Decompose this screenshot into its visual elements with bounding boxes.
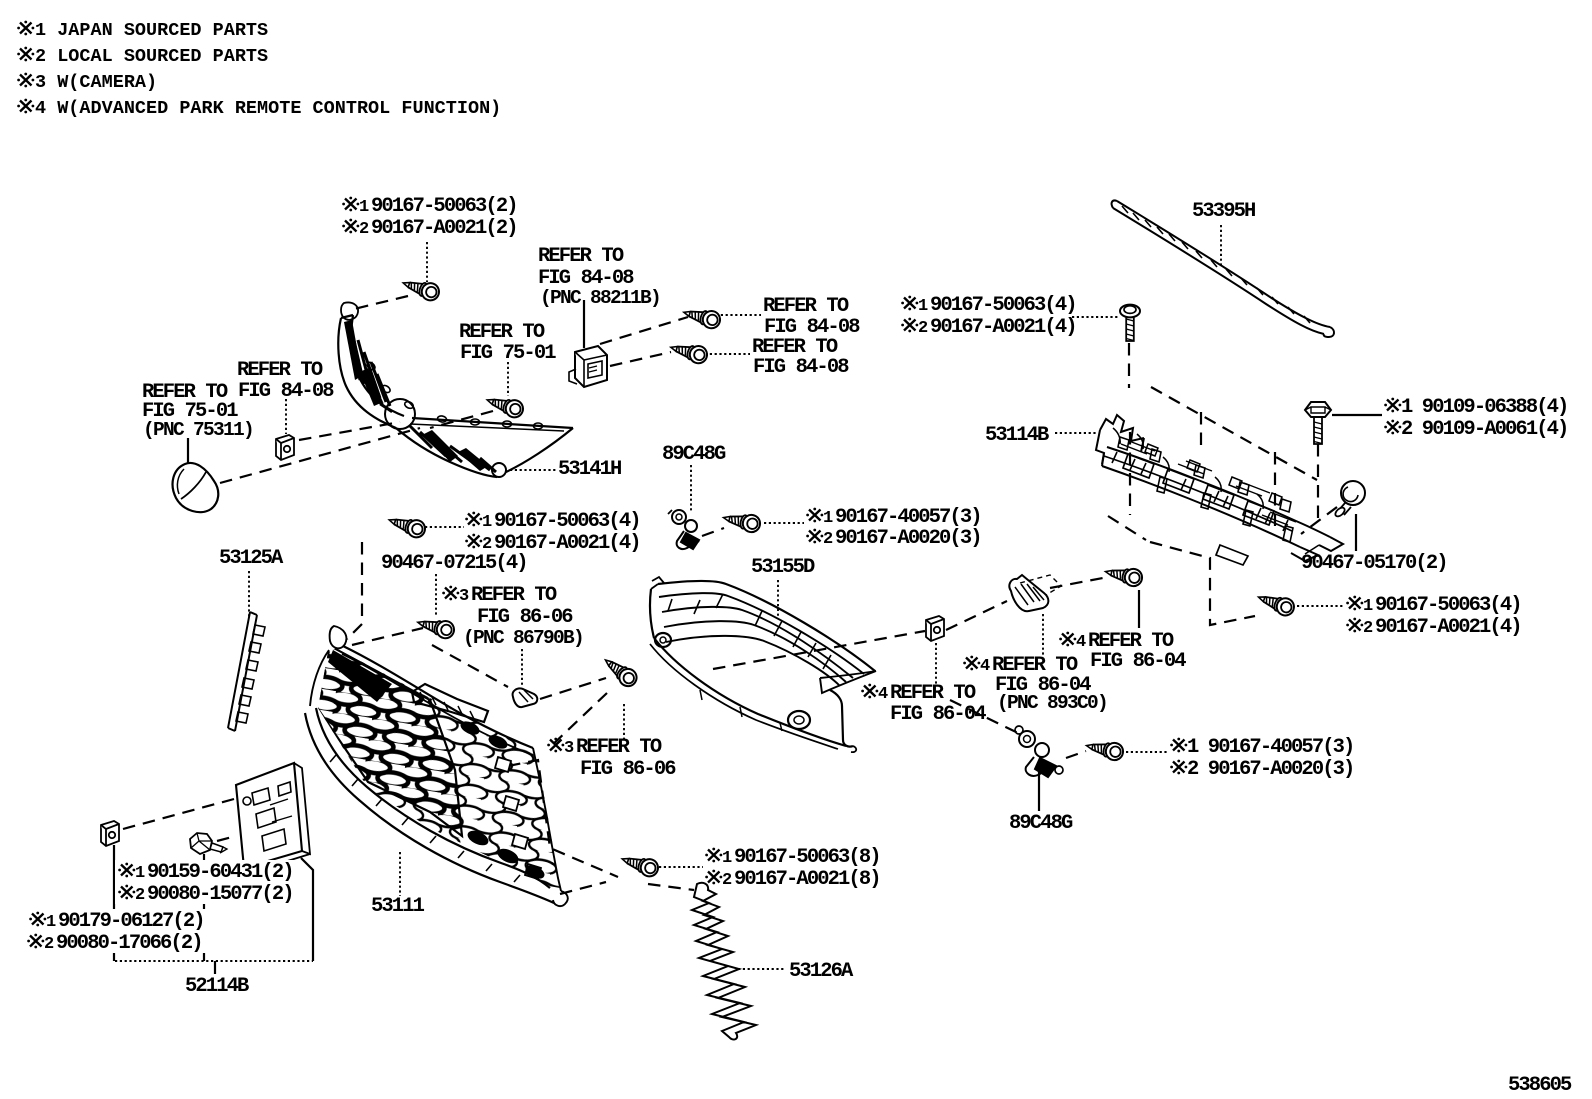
- svg-text:1 JAPAN SOURCED PARTS: 1 JAPAN SOURCED PARTS: [35, 20, 268, 41]
- svg-text:90080-17066(2): 90080-17066(2): [56, 932, 202, 955]
- svg-text:4 W(ADVANCED PARK REMOTE CONTR: 4 W(ADVANCED PARK REMOTE CONTROL FUNCTIO…: [35, 98, 501, 119]
- svg-text:89C48G: 89C48G: [662, 443, 726, 466]
- svg-text:90167-40057(3): 90167-40057(3): [835, 506, 981, 529]
- svg-text:REFER TO: REFER TO: [471, 584, 557, 607]
- svg-text:1 90167-40057(3): 1 90167-40057(3): [1187, 736, 1353, 759]
- svg-text:1: 1: [1363, 597, 1373, 616]
- svg-text:90167-50063(2): 90167-50063(2): [371, 195, 517, 218]
- svg-text:53155D: 53155D: [751, 556, 815, 579]
- svg-text:53111: 53111: [371, 895, 425, 918]
- svg-text:90167-A0020(3): 90167-A0020(3): [835, 527, 981, 550]
- svg-text:90080-15077(2): 90080-15077(2): [147, 883, 293, 906]
- svg-text:53114B: 53114B: [985, 424, 1049, 447]
- svg-text:52114B: 52114B: [185, 975, 249, 998]
- svg-text:2: 2: [135, 886, 145, 905]
- svg-text:FIG 86-04: FIG 86-04: [1090, 650, 1186, 673]
- svg-text:REFER TO: REFER TO: [763, 295, 849, 318]
- svg-text:90167-A0021(8): 90167-A0021(8): [734, 868, 880, 891]
- svg-text:89C48G: 89C48G: [1009, 812, 1073, 835]
- svg-text:1: 1: [722, 849, 732, 868]
- svg-text:90179-06127(2): 90179-06127(2): [58, 910, 204, 933]
- svg-text:90167-50063(4): 90167-50063(4): [930, 294, 1076, 317]
- svg-text:4: 4: [980, 657, 990, 676]
- svg-text:90167-A0021(2): 90167-A0021(2): [371, 217, 517, 240]
- svg-text:REFER TO: REFER TO: [538, 245, 624, 268]
- svg-text:3: 3: [459, 587, 469, 606]
- svg-text:90467-07215(4): 90467-07215(4): [381, 552, 527, 575]
- svg-text:90167-50063(4): 90167-50063(4): [494, 510, 640, 533]
- svg-text:90167-A0021(4): 90167-A0021(4): [930, 316, 1076, 339]
- svg-text:(PNC 88211B): (PNC 88211B): [540, 287, 660, 309]
- svg-text:REFER TO: REFER TO: [890, 682, 976, 705]
- svg-text:(PNC 893C0): (PNC 893C0): [997, 692, 1107, 714]
- svg-text:(PNC 75311): (PNC 75311): [143, 419, 253, 441]
- svg-text:53126A: 53126A: [789, 960, 854, 983]
- svg-text:90167-50063(8): 90167-50063(8): [734, 846, 880, 869]
- svg-text:90467-05170(2): 90467-05170(2): [1301, 552, 1447, 575]
- svg-text:1: 1: [482, 513, 492, 532]
- svg-text:2 90167-A0020(3): 2 90167-A0020(3): [1187, 758, 1353, 781]
- svg-text:538605: 538605: [1508, 1074, 1572, 1097]
- svg-text:FIG 86-04: FIG 86-04: [890, 703, 986, 726]
- svg-text:2 90109-A0061(4): 2 90109-A0061(4): [1401, 418, 1567, 441]
- svg-text:53141H: 53141H: [558, 458, 621, 481]
- svg-text:1: 1: [135, 864, 145, 883]
- svg-text:FIG 86-06: FIG 86-06: [477, 606, 573, 629]
- svg-text:53395H: 53395H: [1192, 200, 1255, 223]
- svg-text:2 LOCAL SOURCED PARTS: 2 LOCAL SOURCED PARTS: [35, 46, 268, 67]
- svg-text:90167-50063(4): 90167-50063(4): [1375, 594, 1521, 617]
- svg-text:REFER TO: REFER TO: [237, 359, 323, 382]
- svg-text:2: 2: [722, 871, 732, 890]
- svg-text:(PNC 86790B): (PNC 86790B): [463, 627, 583, 649]
- svg-text:1 90109-06388(4): 1 90109-06388(4): [1401, 396, 1567, 419]
- svg-text:2: 2: [44, 935, 54, 954]
- svg-text:1: 1: [359, 198, 369, 217]
- svg-text:2: 2: [823, 530, 833, 549]
- svg-text:FIG 75-01: FIG 75-01: [460, 342, 556, 365]
- svg-text:4: 4: [878, 685, 888, 704]
- svg-text:FIG 86-06: FIG 86-06: [580, 758, 676, 781]
- svg-text:FIG 84-08: FIG 84-08: [753, 356, 849, 379]
- svg-text:90159-60431(2): 90159-60431(2): [147, 861, 293, 884]
- svg-text:2: 2: [359, 220, 369, 239]
- svg-text:1: 1: [918, 297, 928, 316]
- svg-text:REFER TO: REFER TO: [459, 321, 545, 344]
- svg-text:1: 1: [46, 913, 56, 932]
- svg-text:FIG 84-08: FIG 84-08: [238, 380, 334, 403]
- svg-text:3 W(CAMERA): 3 W(CAMERA): [35, 72, 157, 93]
- svg-text:4: 4: [1076, 633, 1086, 652]
- svg-text:90167-A0021(4): 90167-A0021(4): [1375, 616, 1521, 639]
- svg-text:1: 1: [823, 509, 833, 528]
- svg-text:REFER TO: REFER TO: [576, 736, 662, 759]
- svg-text:2: 2: [1363, 619, 1373, 638]
- svg-text:53125A: 53125A: [219, 547, 284, 570]
- svg-text:3: 3: [564, 739, 574, 758]
- svg-text:2: 2: [918, 319, 928, 338]
